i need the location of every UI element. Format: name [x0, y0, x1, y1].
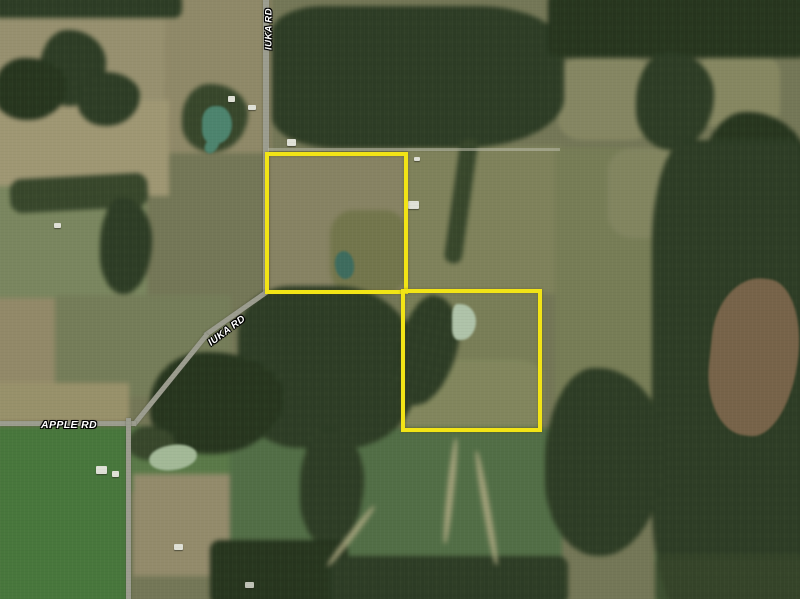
building [248, 105, 256, 110]
building [174, 544, 183, 550]
road-label-iuka-rd-north: IUKA RD [264, 8, 275, 50]
south-road-segment [126, 418, 131, 599]
building [112, 471, 119, 477]
building [54, 223, 61, 228]
building [245, 582, 254, 588]
pond [702, 274, 800, 440]
pond [147, 442, 198, 473]
building [414, 157, 420, 161]
building [408, 201, 419, 209]
aerial-satellite-map: IUKA RD IUKA RD APPLE RD [0, 0, 800, 599]
building [96, 466, 107, 474]
parcel-boundary-north [265, 152, 408, 294]
road-label-apple-rd: APPLE RD [41, 419, 97, 431]
ponds-layer [0, 0, 800, 599]
parcel-boundary-south [401, 289, 542, 432]
building [228, 96, 235, 102]
east-west-lane [268, 148, 560, 151]
building [287, 139, 296, 146]
